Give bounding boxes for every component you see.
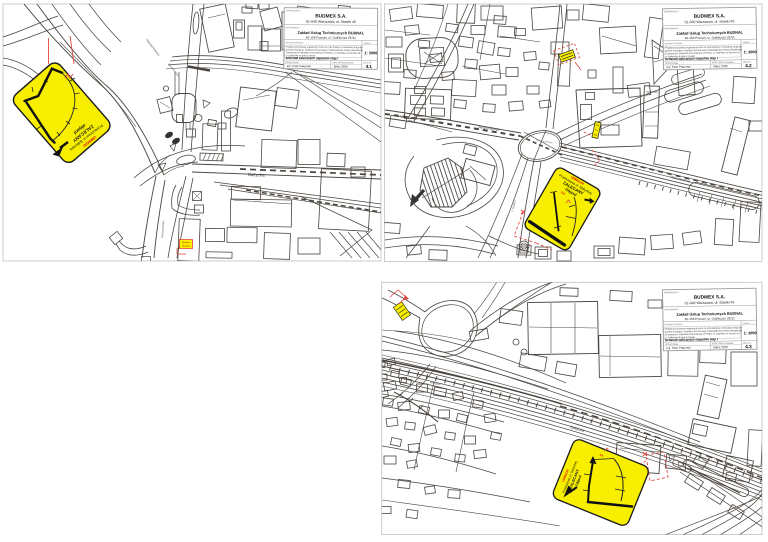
svg-text:SKALA: SKALA — [743, 322, 750, 325]
svg-text:Obejścia: Obejścia — [182, 246, 191, 248]
svg-text:ZAMAWIAJĄCY: ZAMAWIAJĄCY — [664, 10, 680, 13]
svg-text:Bałtycka: Bałtycka — [248, 172, 265, 178]
svg-text:01-040 Warszawa, ul. Stawki 40: 01-040 Warszawa, ul. Stawki 40 — [306, 20, 356, 24]
svg-text:lipiec 2015: lipiec 2015 — [713, 345, 728, 349]
svg-text:4.3: 4.3 — [745, 344, 752, 349]
svg-text:1: 2000: 1: 2000 — [364, 51, 377, 55]
svg-text:01-040 Warszawa, ul. Stawki 40: 01-040 Warszawa, ul. Stawki 40 — [685, 19, 735, 24]
svg-text:inż. Piotr Pakorski: inż. Piotr Pakorski — [287, 64, 311, 68]
svg-text:4.2: 4.2 — [745, 63, 752, 68]
svg-text:NAZWA RYSUNKU: NAZWA RYSUNKU — [665, 42, 684, 45]
svg-text:01-040 Warszawa, ul. Stawki 40: 01-040 Warszawa, ul. Stawki 40 — [685, 300, 735, 305]
svg-text:1: 2000: 1: 2000 — [744, 331, 757, 335]
svg-text:SKALA: SKALA — [743, 41, 750, 44]
svg-text:WYKONAWCA: WYKONAWCA — [286, 26, 301, 29]
svg-text:Budowa: Budowa — [182, 242, 190, 244]
svg-text:SKALA: SKALA — [364, 42, 371, 45]
svg-text:ZAMAWIAJĄCY: ZAMAWIAJĄCY — [286, 9, 302, 12]
svg-text:4.1: 4.1 — [366, 64, 373, 69]
svg-text:ZAMAWIAJĄCY: ZAMAWIAJĄCY — [664, 291, 680, 294]
svg-text:inż. Piotr Pakorski: inż. Piotr Pakorski — [666, 65, 690, 69]
svg-text:BUDMEX S.A.: BUDMEX S.A. — [315, 13, 346, 19]
svg-text:WYKONAWCA: WYKONAWCA — [664, 308, 679, 311]
svg-text:lipiec 2015: lipiec 2015 — [334, 64, 349, 68]
svg-text:lipiec 2015: lipiec 2015 — [713, 64, 728, 68]
svg-text:1: 2000: 1: 2000 — [744, 50, 757, 54]
svg-text:NAZWA RYSUNKU: NAZWA RYSUNKU — [285, 41, 304, 44]
svg-text:inż. Piotr Pakorski: inż. Piotr Pakorski — [666, 346, 690, 350]
svg-text:WYKONAWCA: WYKONAWCA — [664, 27, 679, 30]
svg-text:NAZWA RYSUNKU: NAZWA RYSUNKU — [665, 323, 684, 326]
svg-text:Schemat zalecanych objazdów et: Schemat zalecanych objazdów etap I — [286, 56, 339, 60]
svg-text:60-159 Poznań, ul. Galileusza: 60-159 Poznań, ul. Galileusza 2E/11 — [306, 36, 356, 40]
